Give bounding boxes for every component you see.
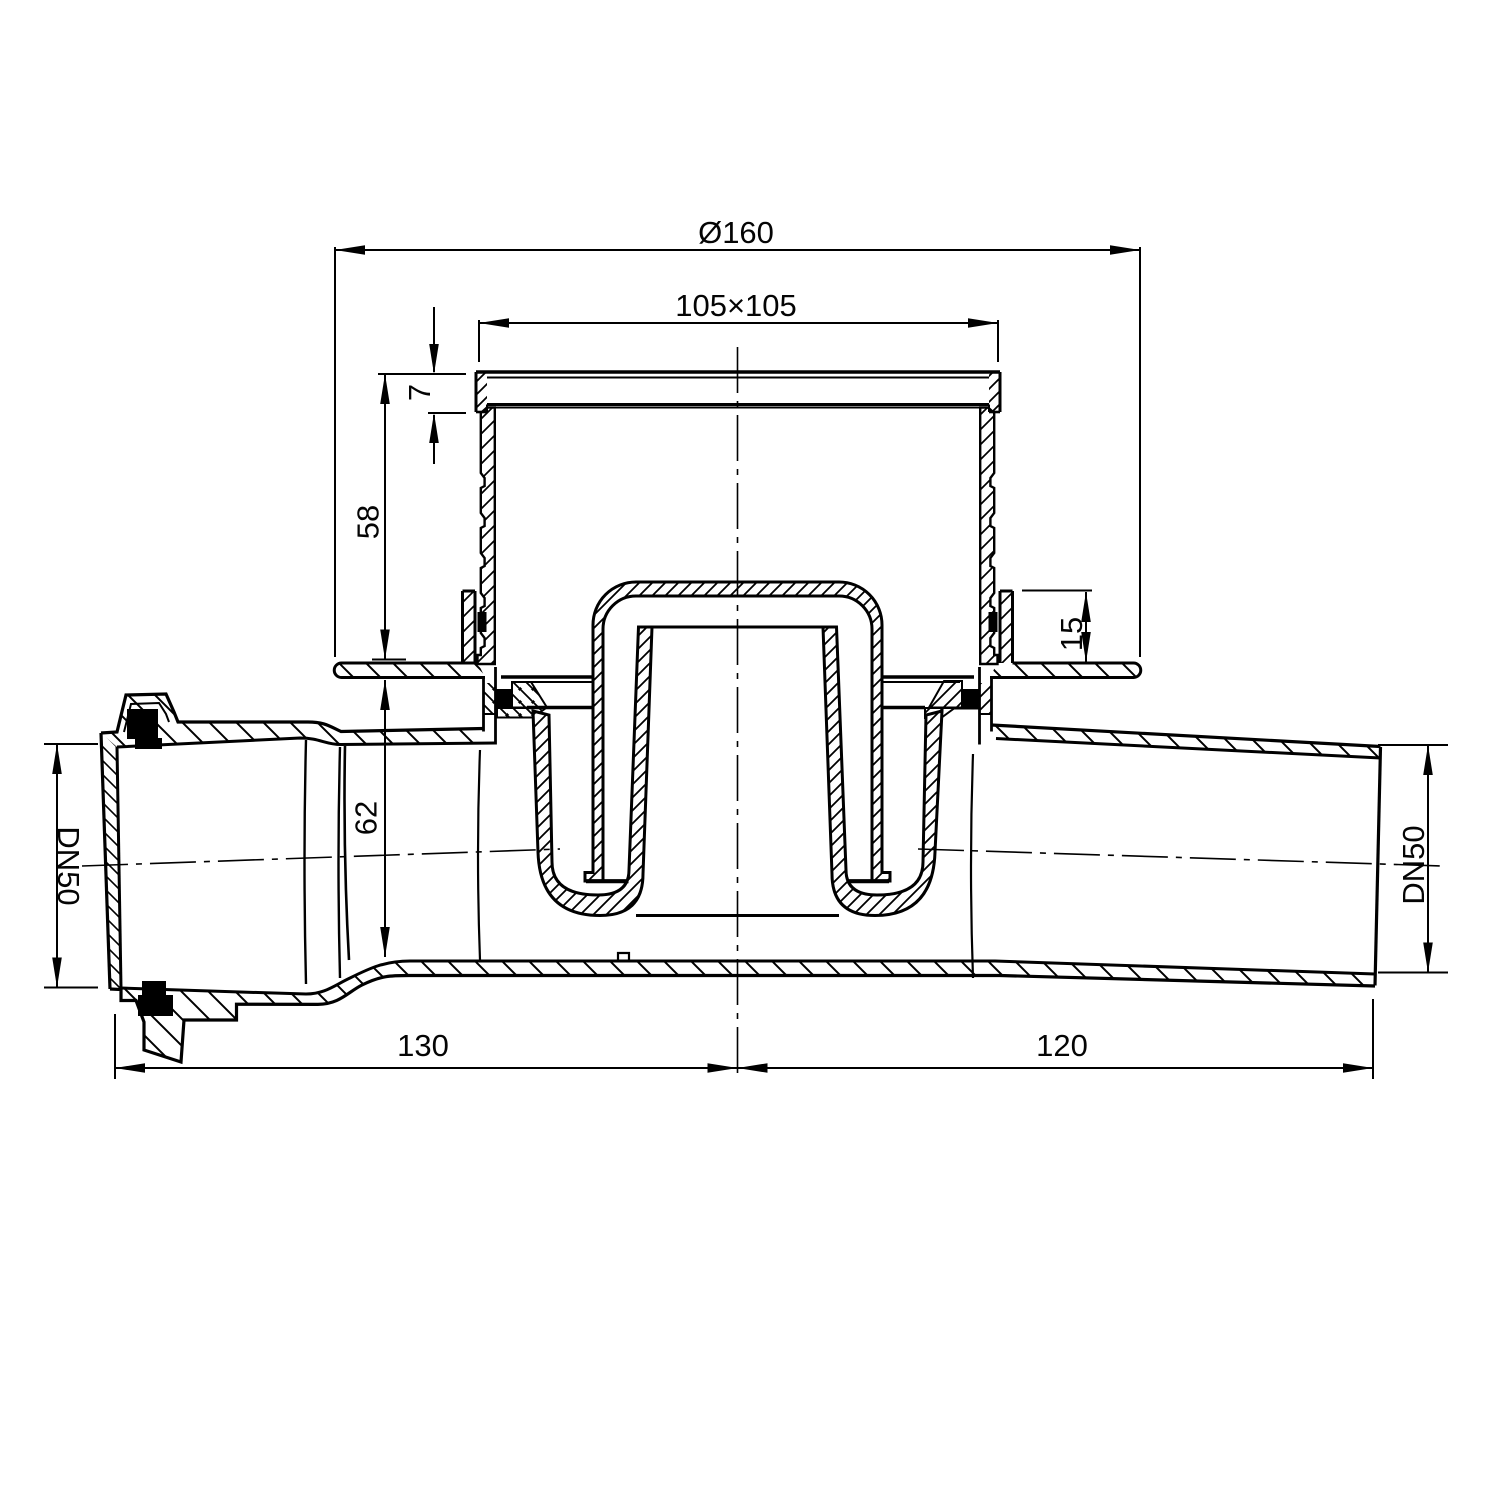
svg-text:58: 58: [351, 505, 386, 539]
svg-text:62: 62: [349, 801, 384, 835]
svg-text:120: 120: [1036, 1028, 1088, 1063]
svg-text:DN50: DN50: [1396, 825, 1431, 904]
svg-text:105×105: 105×105: [675, 288, 797, 323]
svg-text:130: 130: [397, 1028, 449, 1063]
svg-text:7: 7: [402, 384, 437, 401]
svg-text:15: 15: [1054, 617, 1089, 651]
svg-text:DN50: DN50: [51, 826, 86, 905]
svg-text:Ø160: Ø160: [698, 215, 774, 250]
